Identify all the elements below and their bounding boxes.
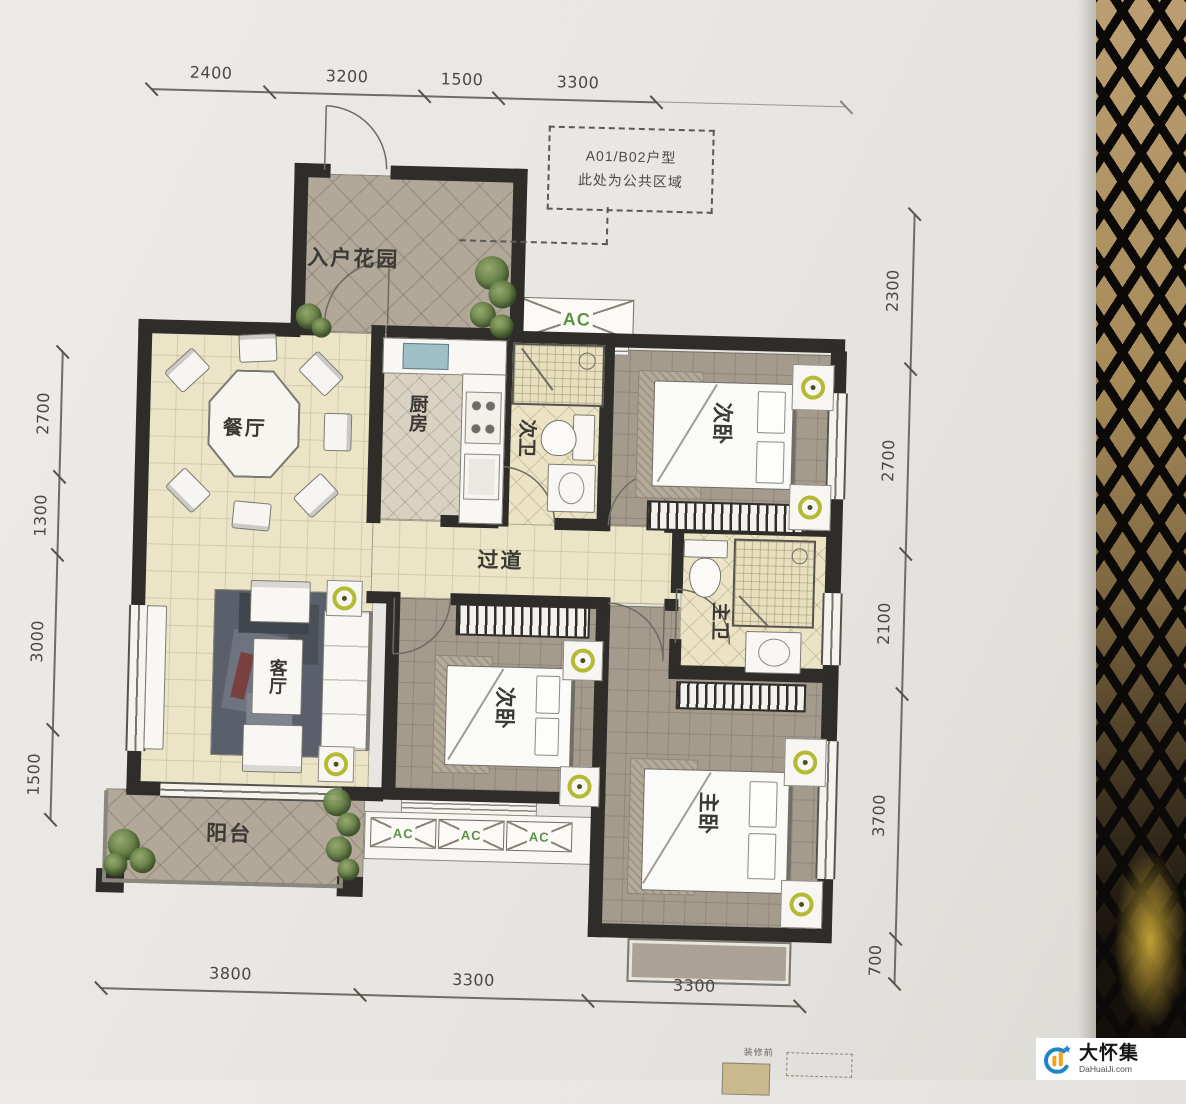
dimension-line-right xyxy=(893,214,915,984)
dim-left-2: 1300 xyxy=(30,494,50,537)
dining-chair xyxy=(238,333,277,363)
watermark-site: DaHuaiJi.com xyxy=(1079,1065,1139,1074)
dim-top-1: 2400 xyxy=(190,63,233,83)
ac-unit-3: AC xyxy=(506,821,573,853)
dim-tick xyxy=(840,100,854,114)
bedroom-secondary-top-label: 次卧 xyxy=(711,402,733,445)
bath-master-label: 主卫 xyxy=(709,602,729,640)
floorplan-sheet: AC AC AC AC xyxy=(0,0,1114,1094)
bedroom-mid-door-arc xyxy=(393,598,450,655)
annotation-callout: A01/B02户型 此处为公共区域 xyxy=(547,126,715,214)
kitchen-label: 厨房 xyxy=(407,394,427,432)
window xyxy=(821,593,843,665)
pillow xyxy=(534,717,559,756)
watermark-name: 大怀集 xyxy=(1079,1044,1139,1063)
nightstand-lamp xyxy=(791,364,834,411)
nightstand-lamp xyxy=(559,766,600,807)
watermark: 大怀集 DaHuaiJi.com xyxy=(1036,1038,1186,1080)
annotation-leader xyxy=(606,207,611,245)
nightstand-lamp xyxy=(780,880,823,929)
armchair xyxy=(250,580,311,624)
wardrobe xyxy=(646,500,807,534)
dining-label: 餐厅 xyxy=(222,411,267,441)
dimension-line-extension xyxy=(656,101,846,107)
dim-bottom-3: 3300 xyxy=(673,976,716,996)
nightstand-lamp xyxy=(788,484,831,531)
wall xyxy=(554,518,608,531)
watermark-logo-icon xyxy=(1042,1043,1074,1075)
kitchen-sink xyxy=(402,343,449,370)
tv-cabinet xyxy=(143,605,167,749)
bedroom-secondary-mid-label: 次卧 xyxy=(493,686,515,729)
background-mesh xyxy=(1096,0,1186,1080)
wall xyxy=(671,521,685,593)
ac-label: AC xyxy=(561,308,594,330)
kitchen-appliance xyxy=(463,453,500,500)
toilet-bowl xyxy=(540,419,577,456)
floor-lamp xyxy=(326,580,363,617)
bath-secondary-label: 次卫 xyxy=(516,419,536,457)
pillow xyxy=(535,675,560,714)
dim-right-3: 2100 xyxy=(874,602,894,645)
pillow xyxy=(757,391,786,434)
ac-label: AC xyxy=(391,825,416,841)
dim-bottom-1: 3800 xyxy=(209,963,252,983)
nightstand-lamp xyxy=(784,738,827,787)
hallway-label: 过道 xyxy=(477,544,524,575)
ac-unit-1: AC xyxy=(370,817,437,849)
balcony-label: 阳台 xyxy=(206,817,253,848)
dim-left-1: 2700 xyxy=(33,392,53,435)
living-label: 客厅 xyxy=(268,658,287,694)
master-suite-door-arc xyxy=(607,603,664,660)
stove xyxy=(464,391,501,444)
dim-top-3: 1500 xyxy=(440,69,483,89)
wall xyxy=(366,591,394,604)
floor-lamp xyxy=(318,746,355,783)
pillow xyxy=(747,833,776,880)
dim-right-5: 700 xyxy=(865,944,885,977)
next-figure-callout xyxy=(786,1052,853,1078)
wardrobe xyxy=(455,603,590,638)
next-figure-fragment xyxy=(722,1062,771,1095)
ac-label: AC xyxy=(459,827,484,843)
paper-edge-shadow xyxy=(1078,0,1098,1080)
armchair xyxy=(242,724,303,774)
dim-left-4: 1500 xyxy=(24,753,44,796)
entry-door-arc xyxy=(324,106,390,172)
dim-top-4: 3300 xyxy=(556,72,599,92)
annotation-line1: A01/B02户型 xyxy=(585,145,676,171)
ac-label: AC xyxy=(527,829,552,845)
nightstand-lamp xyxy=(562,640,603,681)
dim-right-1: 2300 xyxy=(883,269,903,312)
photo-of-floorplan: { "rooms": { "entry_garden": "入户花园", "di… xyxy=(0,0,1186,1080)
sofa xyxy=(320,610,373,751)
toilet-tank xyxy=(684,539,728,558)
dim-right-2: 2700 xyxy=(878,439,898,482)
dim-right-4: 3700 xyxy=(869,794,889,837)
dim-bottom-2: 3300 xyxy=(452,970,495,990)
wardrobe xyxy=(676,681,807,712)
pillow xyxy=(749,781,778,828)
annotation-line2: 此处为公共区域 xyxy=(578,168,684,195)
ac-unit-2: AC xyxy=(438,819,505,851)
dining-chair xyxy=(231,500,272,532)
wall xyxy=(126,781,160,796)
entry-garden-label: 入户花园 xyxy=(307,241,458,275)
bathroom-sink xyxy=(745,631,802,674)
pillow xyxy=(756,441,785,484)
bathroom-sink xyxy=(547,464,596,513)
coffee-table: 客厅 xyxy=(251,638,303,715)
dim-top-2: 3200 xyxy=(325,66,368,86)
room-hallway-floor xyxy=(370,519,678,605)
dim-left-3: 3000 xyxy=(27,620,47,663)
bedroom-master-label: 主卧 xyxy=(696,792,718,835)
next-figure-caption: 装修前 xyxy=(744,1045,774,1059)
dining-chair xyxy=(323,413,352,452)
